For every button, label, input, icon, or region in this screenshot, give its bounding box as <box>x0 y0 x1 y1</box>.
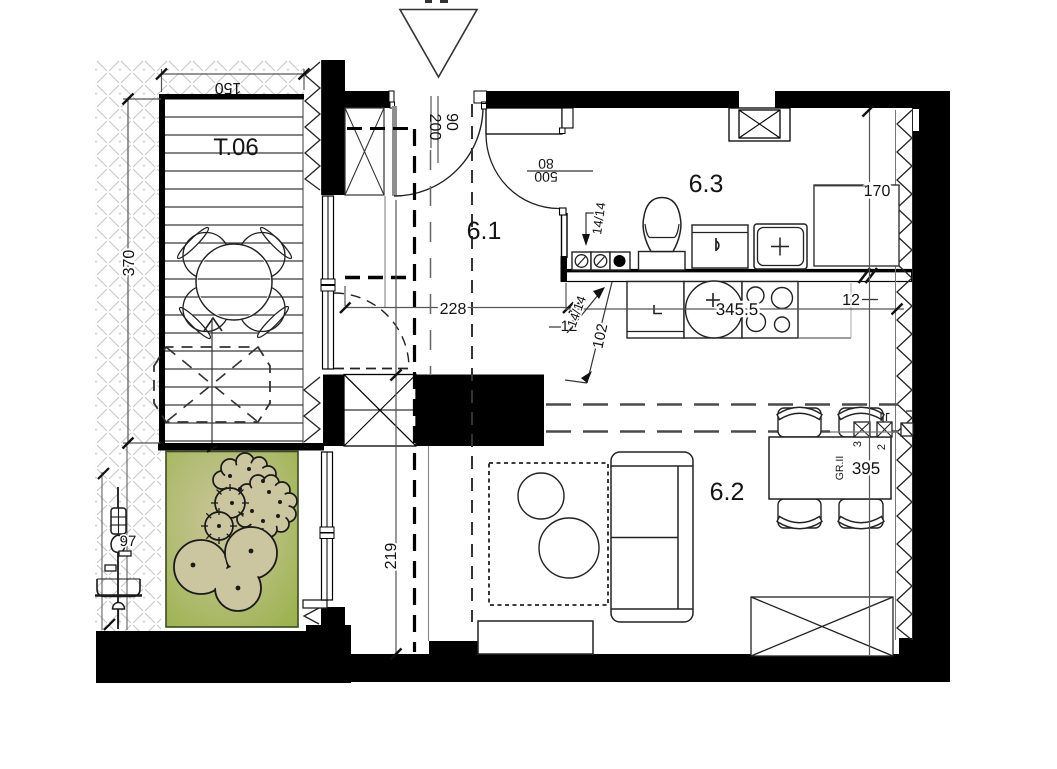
svg-text:6.2: 6.2 <box>710 478 745 506</box>
svg-text:500: 500 <box>534 169 558 185</box>
svg-text:T.06: T.06 <box>213 134 258 161</box>
svg-text:97: 97 <box>120 533 137 550</box>
svg-text:90: 90 <box>443 113 460 131</box>
svg-text:6.1: 6.1 <box>467 217 502 245</box>
svg-text:228: 228 <box>440 301 467 318</box>
svg-text:370: 370 <box>121 250 138 277</box>
svg-text:GR.II: GR.II <box>834 456 846 481</box>
svg-text:200: 200 <box>426 114 443 141</box>
svg-text:6.3: 6.3 <box>689 170 724 198</box>
svg-text:150: 150 <box>215 79 242 96</box>
svg-text:395: 395 <box>852 459 880 478</box>
svg-text:345.5: 345.5 <box>716 300 759 319</box>
svg-text:219: 219 <box>383 543 400 570</box>
svg-text:12: 12 <box>842 292 860 309</box>
svg-text:3: 3 <box>852 441 864 447</box>
svg-text:2: 2 <box>876 444 888 450</box>
